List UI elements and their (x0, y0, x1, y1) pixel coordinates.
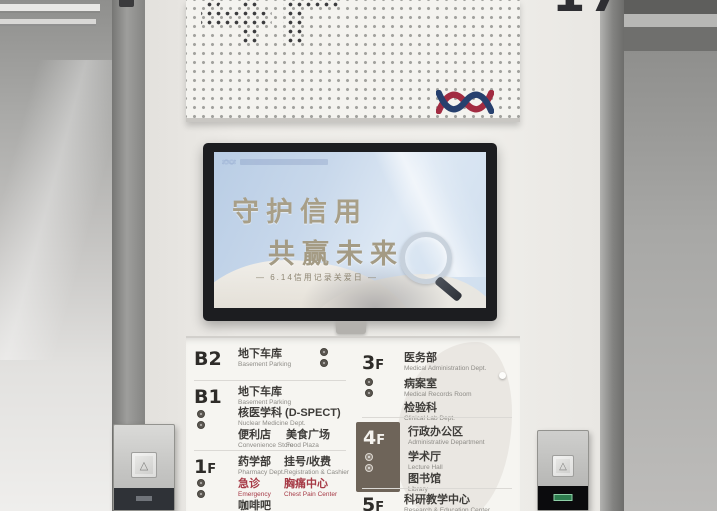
3f-service-icons (365, 378, 373, 397)
screen-watermark (222, 158, 328, 166)
entry-cn: 科研教学中心 (404, 494, 490, 506)
floor-label-5f: 5F (362, 494, 384, 511)
panel-screw (499, 372, 506, 379)
slogan-line-1: 守护信用 (232, 190, 368, 229)
wall-floor-number: 17 (552, 0, 625, 23)
entry-en: Basement Parking (238, 361, 291, 368)
directory-entry: 地下车库 Basement Parking (238, 386, 291, 406)
entry-en: Pharmacy Dept. (238, 469, 285, 476)
divider (362, 488, 512, 489)
accessible-elevator-icon (365, 389, 373, 397)
signage-screen-content: 守护信用 共赢未来 — 6.14信用记录关爱日 — (214, 152, 486, 308)
call-panel-lower-right (538, 486, 588, 510)
floor-label-1f: 1F (194, 456, 216, 478)
hospital-logo-icon (436, 90, 494, 114)
entry-cn: 病案室 (404, 378, 472, 390)
accessible-elevator-icon (365, 464, 373, 472)
tv-wall-mount (336, 321, 366, 334)
entry-cn: 医务部 (404, 352, 486, 364)
directory-entry: 美食广场 Food Plaza (286, 429, 330, 449)
perforated-sign-panel: 4F (186, 0, 520, 122)
directory-entry: 学术厅 Lecture Hall (408, 451, 443, 471)
directory-entry: 药学部 Pharmacy Dept. (238, 456, 285, 476)
entry-en: Basement Parking (238, 399, 291, 406)
entry-en: Nuclear Medicine Dept. (238, 420, 341, 427)
hall-call-panel-left: △ (113, 424, 175, 511)
entry-en: Emergency (238, 491, 271, 498)
entry-en: Administrative Department (408, 439, 485, 446)
entry-cn: 药学部 (238, 456, 285, 468)
entry-cn: 核医学科 (D-SPECT) (238, 407, 341, 419)
elevator-lobby-scene: 17 4F 守护信用 共赢未来 — 6.14信 (0, 0, 717, 511)
4f-service-icons (365, 453, 400, 472)
right-door-panel (624, 51, 717, 511)
directory-entry: 便利店 Convenience Store (238, 429, 293, 449)
entry-en: Food Plaza (286, 442, 330, 449)
call-panel-label (136, 496, 152, 501)
entry-cn: 地下车库 (238, 386, 291, 398)
floor-label-3f: 3F (362, 352, 384, 374)
entry-en: Registration & Cashier (284, 469, 349, 476)
accessible-elevator-icon (320, 359, 328, 367)
floor-label-4f: 4F (196, 0, 348, 62)
call-panel-lower-left (114, 488, 174, 510)
directory-entry: 地下车库 Basement Parking (238, 348, 291, 368)
magnifier-icon (400, 232, 452, 284)
entry-cn: 检验科 (404, 402, 455, 414)
directory-entry: 检验科 Clinical Lab Dept. (404, 402, 455, 422)
left-door-top-trim-2 (0, 19, 96, 26)
directory-entry: 病案室 Medical Records Room (404, 378, 472, 398)
right-door-trim-2 (624, 27, 717, 51)
divider (362, 417, 512, 418)
entry-cn: 学术厅 (408, 451, 443, 463)
directory-entry: 图书馆 Library (408, 473, 441, 493)
watermark-text-blur (240, 159, 328, 165)
entry-cn: 咖啡吧 (238, 500, 271, 511)
b1-service-icons (197, 410, 205, 429)
floor-directory-panel: B2 地下车库 Basement Parking B1 地下车库 Basemen… (186, 336, 520, 511)
1f-service-icons (197, 479, 205, 498)
entry-en: Convenience Store (238, 442, 293, 449)
entry-cn: 便利店 (238, 429, 293, 441)
accessible-elevator-icon (197, 421, 205, 429)
directory-entry-emergency: 急诊 Emergency (238, 478, 271, 498)
directory-entry: 咖啡吧 Cafe (238, 500, 271, 511)
slogan-line-2: 共赢未来 (268, 232, 404, 271)
entry-en: Research & Education Center (404, 507, 490, 511)
floor-4f-highlight-box: 4F (356, 422, 400, 492)
directory-entry: 核医学科 (D-SPECT) Nuclear Medicine Dept. (238, 407, 341, 427)
directory-entry: 挂号/收费 Registration & Cashier (284, 456, 349, 476)
entry-en: Lecture Hall (408, 464, 443, 471)
floor-label-b1: B1 (194, 386, 222, 408)
right-door-trim (624, 14, 717, 27)
entry-cn: 行政办公区 (408, 426, 485, 438)
floor-label-b2: B2 (194, 348, 222, 370)
entry-en: Medical Records Room (404, 391, 472, 398)
left-door-reflection (0, 60, 112, 360)
entry-cn: 美食广场 (286, 429, 330, 441)
slogan-subtitle: — 6.14信用记录关爱日 — (256, 272, 378, 283)
left-door-top-trim (0, 4, 100, 13)
elevator-icon (197, 479, 205, 487)
divider (194, 450, 346, 451)
hall-call-panel-right: △ (537, 430, 589, 511)
b2-service-icons (320, 348, 328, 367)
entry-en: Medical Administration Dept. (404, 365, 486, 372)
elevator-icon (365, 453, 373, 461)
entry-cn: 急诊 (238, 478, 271, 490)
entry-cn: 图书馆 (408, 473, 441, 485)
call-up-button[interactable]: △ (552, 455, 574, 477)
elevator-icon (365, 378, 373, 386)
entry-en: Chest Pain Center (284, 491, 337, 498)
signage-display: 守护信用 共赢未来 — 6.14信用记录关爱日 — (203, 143, 497, 321)
entry-cn: 挂号/收费 (284, 456, 349, 468)
directory-entry: 医务部 Medical Administration Dept. (404, 352, 486, 372)
right-door-frame (600, 0, 624, 511)
floor-label-4f-current: 4F (363, 427, 400, 449)
divider (194, 380, 346, 381)
directory-entry: 行政办公区 Administrative Department (408, 426, 485, 446)
accessible-elevator-icon (197, 490, 205, 498)
entry-cn: 地下车库 (238, 348, 291, 360)
directory-entry-chest-pain: 胸痛中心 Chest Pain Center (284, 478, 337, 498)
wall-floor-number-fragment (119, 0, 134, 7)
entry-cn: 胸痛中心 (284, 478, 337, 490)
directory-entry: 科研教学中心 Research & Education Center (404, 494, 490, 511)
right-door-header (624, 0, 717, 14)
call-panel-indicator (554, 494, 573, 501)
call-up-button[interactable]: △ (131, 452, 157, 478)
elevator-icon (320, 348, 328, 356)
elevator-icon (197, 410, 205, 418)
